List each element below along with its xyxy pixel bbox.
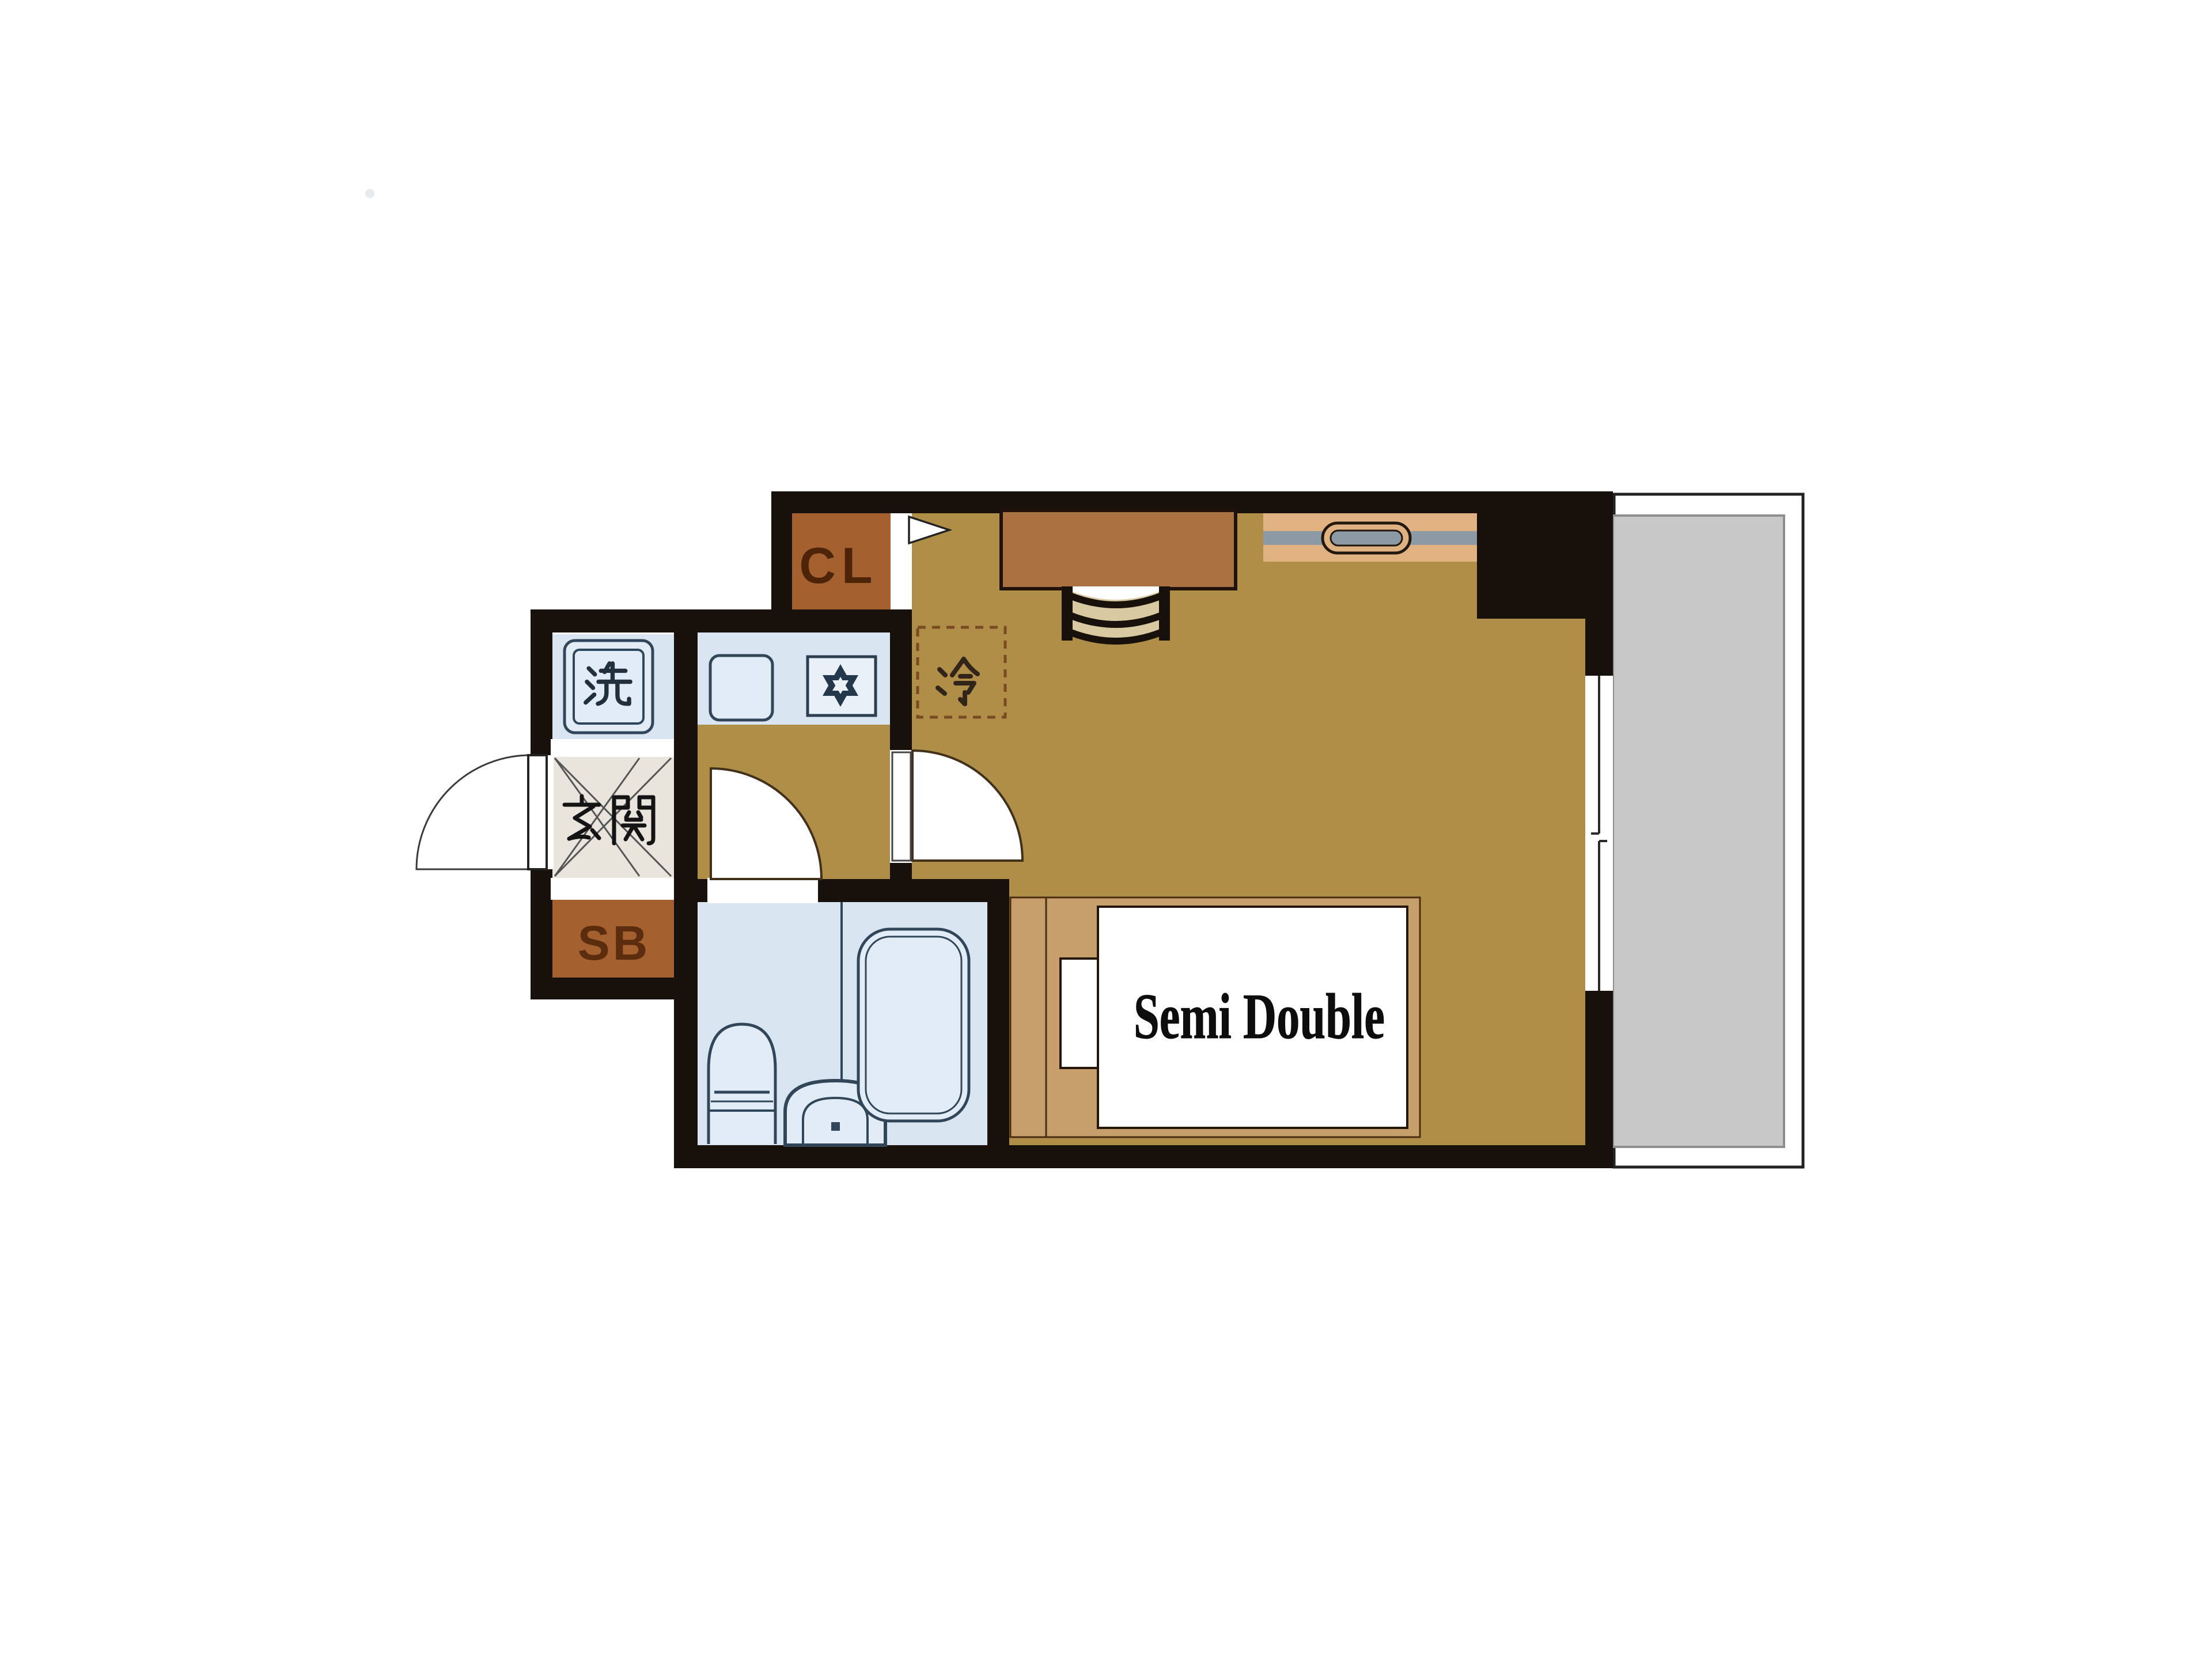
svg-text:CL: CL bbox=[799, 537, 878, 594]
svg-text:Semi Double: Semi Double bbox=[1134, 981, 1385, 1052]
svg-text:SB: SB bbox=[578, 916, 651, 970]
